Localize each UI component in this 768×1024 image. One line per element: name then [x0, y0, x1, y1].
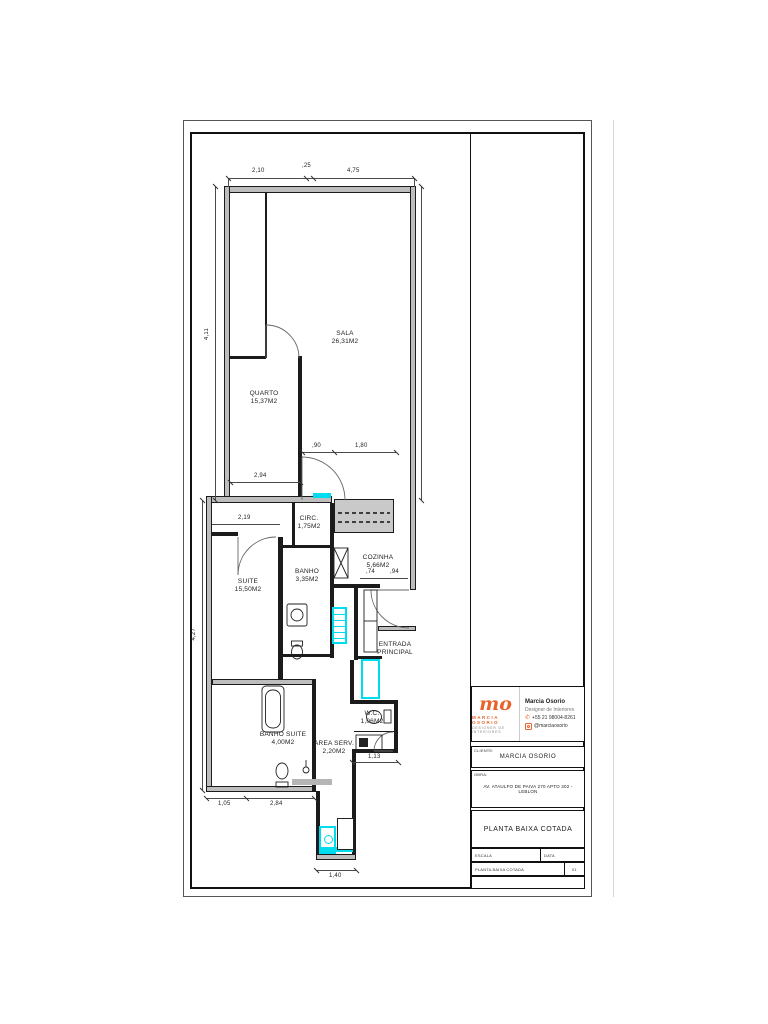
dim-ext-width: 1,40 — [329, 873, 341, 879]
room-label-banho: BANHO3,35M2 — [282, 568, 332, 585]
dim-top-right: 4,75 — [347, 168, 359, 174]
wall-banhosuite-top — [212, 679, 314, 685]
wall-ext-bottom — [316, 854, 356, 860]
ext-door-leaf — [337, 818, 354, 850]
dim-line-right — [421, 186, 422, 500]
dim-left-upper: 4,11 — [204, 328, 210, 340]
wall-suite-top — [212, 532, 238, 536]
titleblock-fields-row1: ESCALA DATA — [471, 848, 585, 862]
wall-areaserv-right-upper — [350, 660, 354, 704]
kitchen-counter — [334, 499, 394, 533]
titleblock-client-box: CLIENTE: MARCIA OSORIO — [471, 746, 585, 768]
wall-quarto-right — [298, 356, 302, 500]
dim-bs-left: 1,05 — [218, 801, 230, 807]
titleblock-fields-row2: PLANTA BAIXA COTADA 01 — [471, 862, 585, 876]
contact-cell: Marcia Osorio Designer de Interiores ✆+5… — [520, 687, 584, 741]
drawing-title: PLANTA BAIXA COTADA — [484, 826, 573, 833]
dim-line-left-lower — [202, 500, 203, 790]
wall-wc-top — [352, 700, 398, 704]
wall-top — [224, 186, 416, 193]
room-label-area-serv: AREA SERV.2,20M2 — [309, 740, 359, 757]
logo-cell: mo MARCIA OSORIO DESIGNER DE INTERIORES — [472, 687, 520, 741]
highlight-cabinet-entry — [361, 659, 380, 699]
dim-circ-door: ,90 — [312, 443, 321, 449]
dim-line-entr — [360, 578, 408, 579]
client-label: CLIENTE: — [474, 748, 494, 753]
titleblock-title-box: PLANTA BAIXA COTADA — [471, 810, 585, 848]
dim-quarto-width: 2,94 — [254, 473, 266, 479]
dim-counter: 1,80 — [355, 443, 367, 449]
obra-text: AV. ATAULFO DE PAIVA 270 APTO 302 - LEBL… — [472, 784, 584, 794]
highlight-cabinet-hall — [332, 607, 347, 644]
room-label-sala: SALA26,31M2 — [315, 330, 375, 347]
client-name: MARCIA OSORIO — [500, 754, 556, 760]
dim-entr-b: ,94 — [390, 569, 399, 575]
logo-mark-icon: mo — [479, 695, 512, 714]
logo-brand: MARCIA OSORIO — [472, 715, 519, 725]
titleblock-logo-box: mo MARCIA OSORIO DESIGNER DE INTERIORES … — [471, 686, 585, 742]
obra-label: OBRA: — [474, 772, 487, 777]
room-label-wc: W.C.1,06M2 — [352, 710, 392, 727]
phone-icon: ✆ — [525, 715, 530, 721]
room-label-entrada: ENTRADAPRINCIPAL — [370, 641, 420, 658]
contact-name: Marcia Osorio — [525, 699, 584, 705]
wall-closet — [265, 193, 267, 358]
titleblock-obra-box: OBRA: AV. ATAULFO DE PAIVA 270 APTO 302 … — [471, 770, 585, 808]
dim-top-mid: ,25 — [302, 163, 311, 169]
wall-quarto-top — [230, 356, 266, 359]
threshold-banhosuite — [292, 779, 332, 785]
highlight-threshold — [313, 493, 331, 498]
logo-sub: DESIGNER DE INTERIORES — [472, 726, 519, 734]
dim-line-quarto — [230, 482, 300, 483]
folha-value: 01 — [572, 867, 577, 872]
dim-left-lower: 4,27 — [191, 628, 197, 640]
wall-banhosuite-bottom — [206, 786, 316, 792]
dim-line-top — [228, 178, 415, 179]
data-label: DATA — [544, 853, 555, 858]
wall-wc-divider — [354, 731, 394, 732]
wall-left-upper — [224, 186, 230, 502]
contact-instagram: @marciaosorio — [534, 723, 568, 729]
contact-phone: +55 21 98004-8261 — [532, 715, 576, 721]
dim-entr-a: ,74 — [366, 569, 375, 575]
wall-hall-right — [354, 584, 358, 660]
dim-wc-width: 1,13 — [368, 754, 380, 760]
room-label-banho-suite: BANHO SUITE4,00M2 — [248, 731, 318, 748]
dim-bs-right: 2,84 — [270, 801, 282, 807]
washing-machine-door-icon — [324, 835, 333, 844]
dim-top-left: 2,10 — [252, 168, 264, 174]
dim-line-bs — [206, 798, 314, 799]
wall-banho-bottom — [283, 654, 331, 657]
dim-line-suite — [212, 524, 280, 525]
dim-line-ext — [316, 870, 356, 871]
page-edge-line — [613, 120, 614, 897]
instagram-icon — [525, 723, 532, 730]
wall-banho-left — [278, 537, 283, 679]
titleblock-fields-row3 — [471, 876, 585, 889]
room-label-suite: SUITE15,50M2 — [218, 578, 278, 595]
wall-entrance-bottom — [378, 626, 416, 631]
wall-wc-right — [394, 700, 398, 753]
folha-left: PLANTA BAIXA COTADA — [475, 867, 524, 872]
escala-label: ESCALA — [475, 853, 492, 858]
dim-line-counter — [302, 452, 396, 453]
dim-line-left-upper — [215, 186, 216, 500]
wall-right — [410, 186, 416, 590]
dim-suite-top: 2,19 — [238, 515, 250, 521]
contact-role: Designer de Interiores — [525, 707, 584, 713]
room-label-circ: CIRC.1,75M2 — [286, 515, 332, 532]
room-label-quarto: QUARTO15,37M2 — [234, 390, 294, 407]
wall-banho-top — [280, 545, 332, 548]
wall-left-lower — [206, 496, 212, 792]
dim-line-wc — [352, 762, 398, 763]
drawing-sheet-page: SALA26,31M2 QUARTO15,37M2 CIRC.1,75M2 SU… — [0, 0, 768, 1024]
room-label-cozinha: COZINHA5,66M2 — [348, 554, 408, 571]
